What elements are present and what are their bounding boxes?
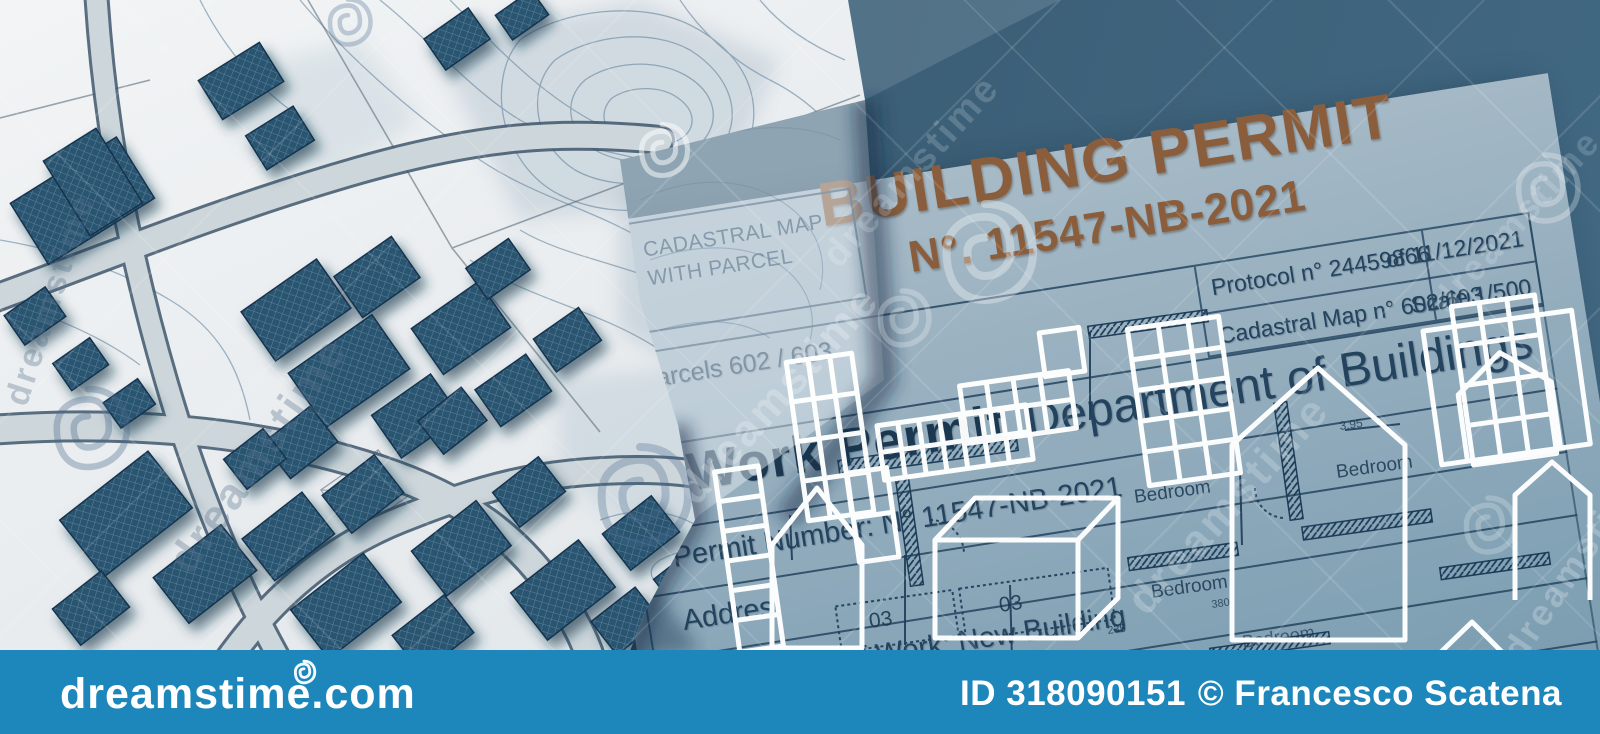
credit-bar: dreamstime.com ID 318090151© Francesco S… bbox=[0, 650, 1600, 734]
watermark-spirals bbox=[0, 0, 1600, 734]
image-author: © Francesco Scatena bbox=[1198, 674, 1562, 713]
dreamstime-logo: dreamstime.com bbox=[60, 650, 416, 734]
logo-spiral-icon bbox=[284, 652, 324, 692]
stock-photo-building-permit-composite: BUILDING PERMIT N°. 11547-NB-2021 CADAST… bbox=[0, 0, 1600, 734]
image-credit: ID 318090151© Francesco Scatena bbox=[948, 650, 1562, 734]
image-id: ID 318090151 bbox=[960, 674, 1186, 713]
